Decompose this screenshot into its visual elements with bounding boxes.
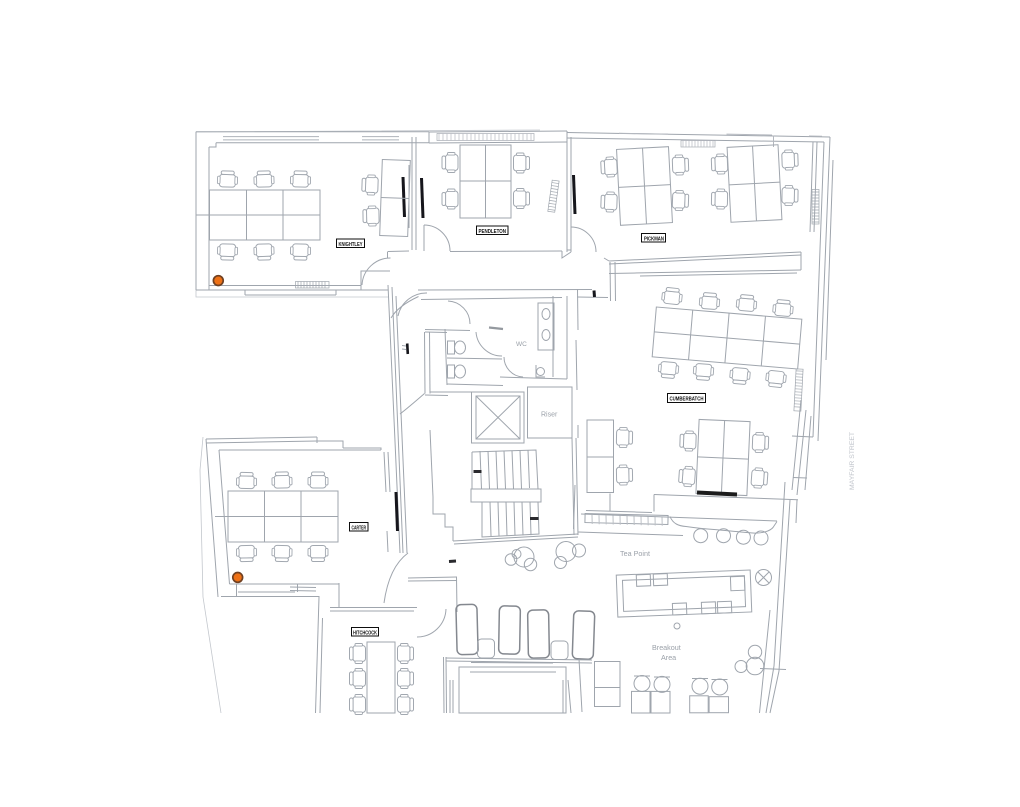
svg-text:Tea Point: Tea Point <box>620 549 650 558</box>
svg-text:PICKMAN: PICKMAN <box>644 236 664 242</box>
svg-text:KNIGHTLEY: KNIGHTLEY <box>339 242 363 248</box>
svg-text:MAYFAIR STREET: MAYFAIR STREET <box>849 432 856 490</box>
svg-text:CARTER: CARTER <box>352 525 367 531</box>
svg-text:Breakout: Breakout <box>652 643 681 652</box>
svg-text:CUMBERBATCH: CUMBERBATCH <box>670 397 704 403</box>
svg-text:PENDLETON: PENDLETON <box>479 229 507 235</box>
svg-text:Area: Area <box>661 653 676 662</box>
svg-text:WC: WC <box>516 341 527 348</box>
svg-text:HITCHCOCK: HITCHCOCK <box>353 630 377 636</box>
svg-text:Riser: Riser <box>541 412 558 419</box>
